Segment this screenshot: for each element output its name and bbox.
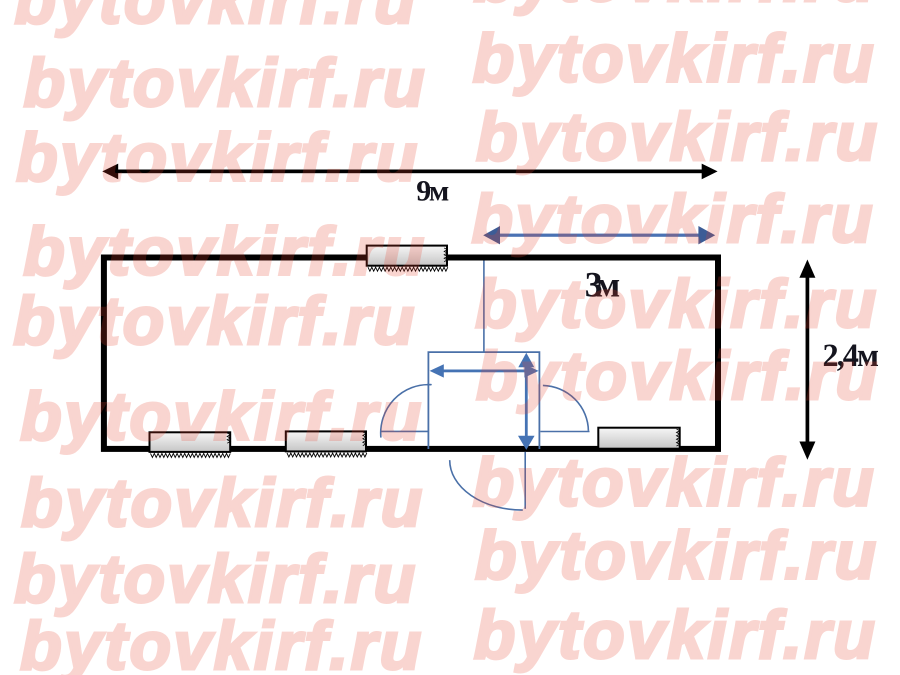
svg-text:bytovkirf.ru: bytovkirf.ru — [20, 608, 423, 675]
svg-text:bytovkirf.ru: bytovkirf.ru — [20, 379, 423, 455]
svg-text:bytovkirf.ru: bytovkirf.ru — [475, 518, 878, 594]
svg-text:bytovkirf.ru: bytovkirf.ru — [21, 465, 424, 541]
svg-text:bytovkirf.ru: bytovkirf.ru — [473, 445, 876, 521]
svg-text:bytovkirf.ru: bytovkirf.ru — [16, 120, 419, 196]
svg-text:bytovkirf.ru: bytovkirf.ru — [24, 45, 427, 121]
svg-text:bytovkirf.ru: bytovkirf.ru — [472, 181, 875, 257]
svg-text:bytovkirf.ru: bytovkirf.ru — [15, 0, 418, 38]
svg-text:bytovkirf.ru: bytovkirf.ru — [13, 283, 416, 359]
svg-text:bytovkirf.ru: bytovkirf.ru — [473, 20, 876, 96]
svg-text:bytovkirf.ru: bytovkirf.ru — [474, 0, 877, 16]
svg-text:bytovkirf.ru: bytovkirf.ru — [14, 541, 417, 617]
svg-text:bytovkirf.ru: bytovkirf.ru — [476, 99, 879, 175]
svg-text:9м: 9м — [416, 174, 449, 207]
svg-text:bytovkirf.ru: bytovkirf.ru — [475, 266, 878, 342]
svg-text:bytovkirf.ru: bytovkirf.ru — [474, 597, 877, 673]
svg-text:bytovkirf.ru: bytovkirf.ru — [476, 338, 879, 414]
svg-text:bytovkirf.ru: bytovkirf.ru — [23, 213, 426, 289]
